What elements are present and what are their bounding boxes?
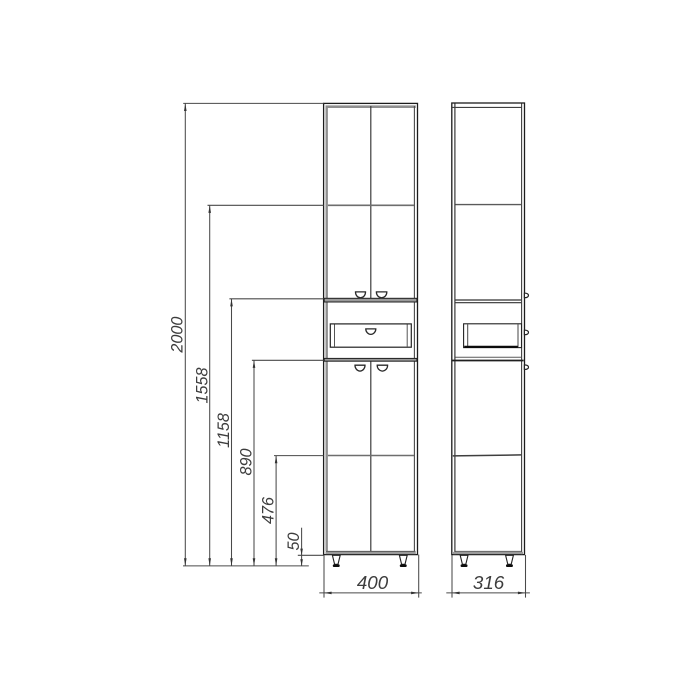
svg-text:476: 476	[260, 497, 278, 524]
svg-text:50: 50	[285, 532, 303, 550]
svg-text:316: 316	[473, 572, 505, 593]
svg-text:400: 400	[357, 572, 389, 593]
svg-text:1158: 1158	[215, 413, 233, 448]
svg-text:890: 890	[238, 448, 256, 475]
svg-text:1558: 1558	[193, 367, 211, 403]
svg-text:2000: 2000	[169, 317, 187, 354]
